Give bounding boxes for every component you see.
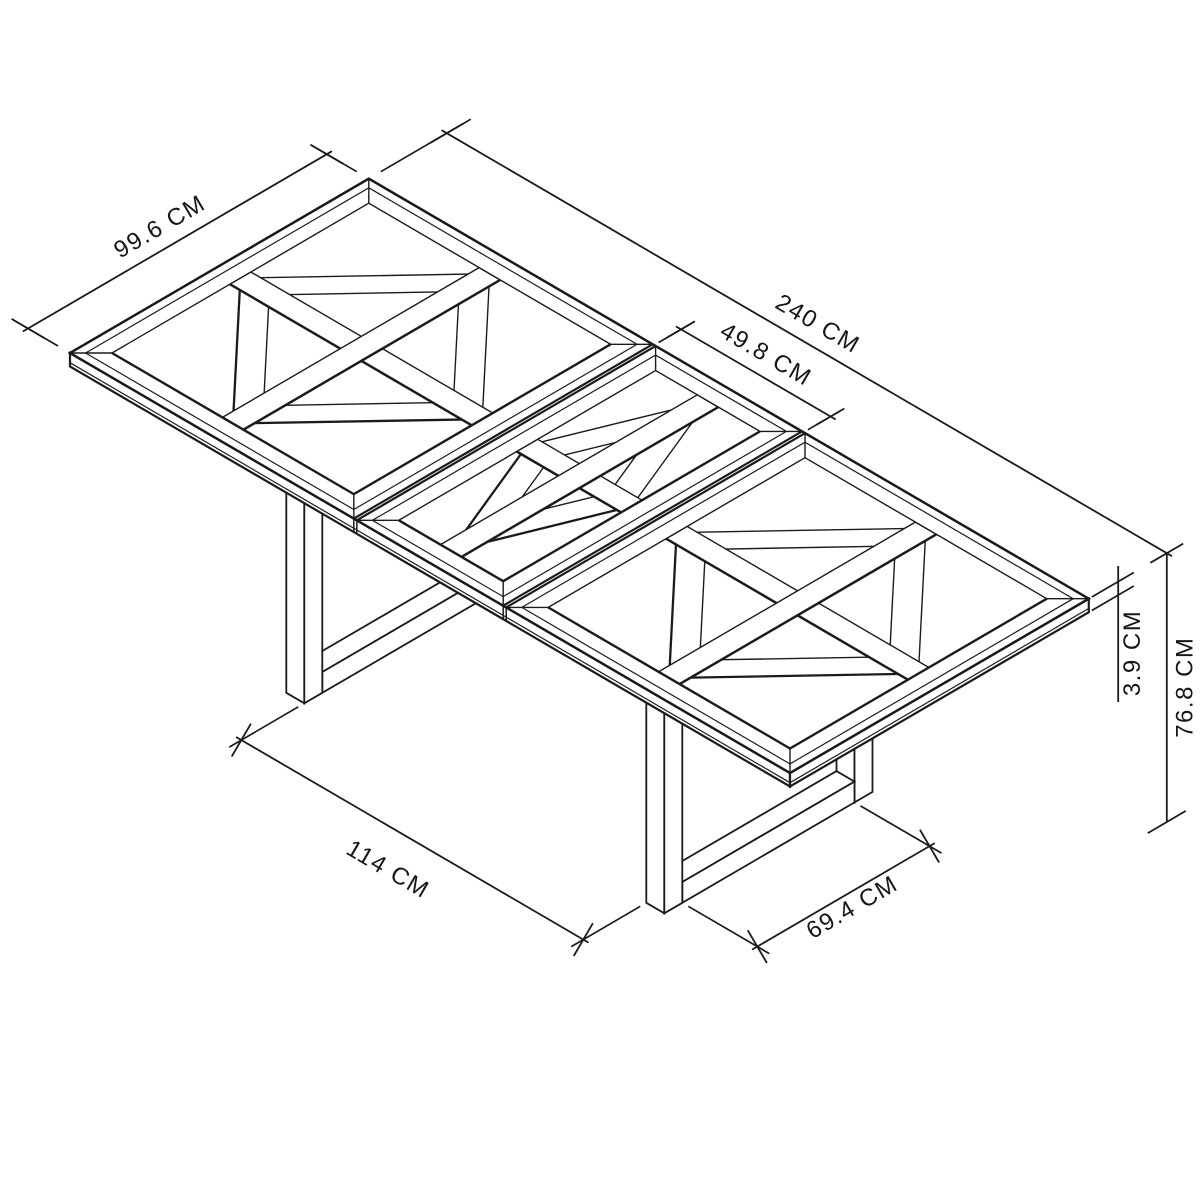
parquet-panels [70, 179, 1089, 773]
dim-label-height: 76.8 CM [1171, 637, 1198, 738]
dim-label-leg-width: 69.4 CM [802, 870, 903, 944]
dim-label-thickness: 3.9 CM [1119, 610, 1146, 696]
isometric-table-drawing: 99.6 CM240 CM49.8 CM3.9 CM76.8 CM114 CM6… [0, 0, 1200, 1200]
technical-drawing-page: 99.6 CM240 CM49.8 CM3.9 CM76.8 CM114 CM6… [0, 0, 1200, 1200]
dim-label-width: 99.6 CM [109, 190, 210, 264]
